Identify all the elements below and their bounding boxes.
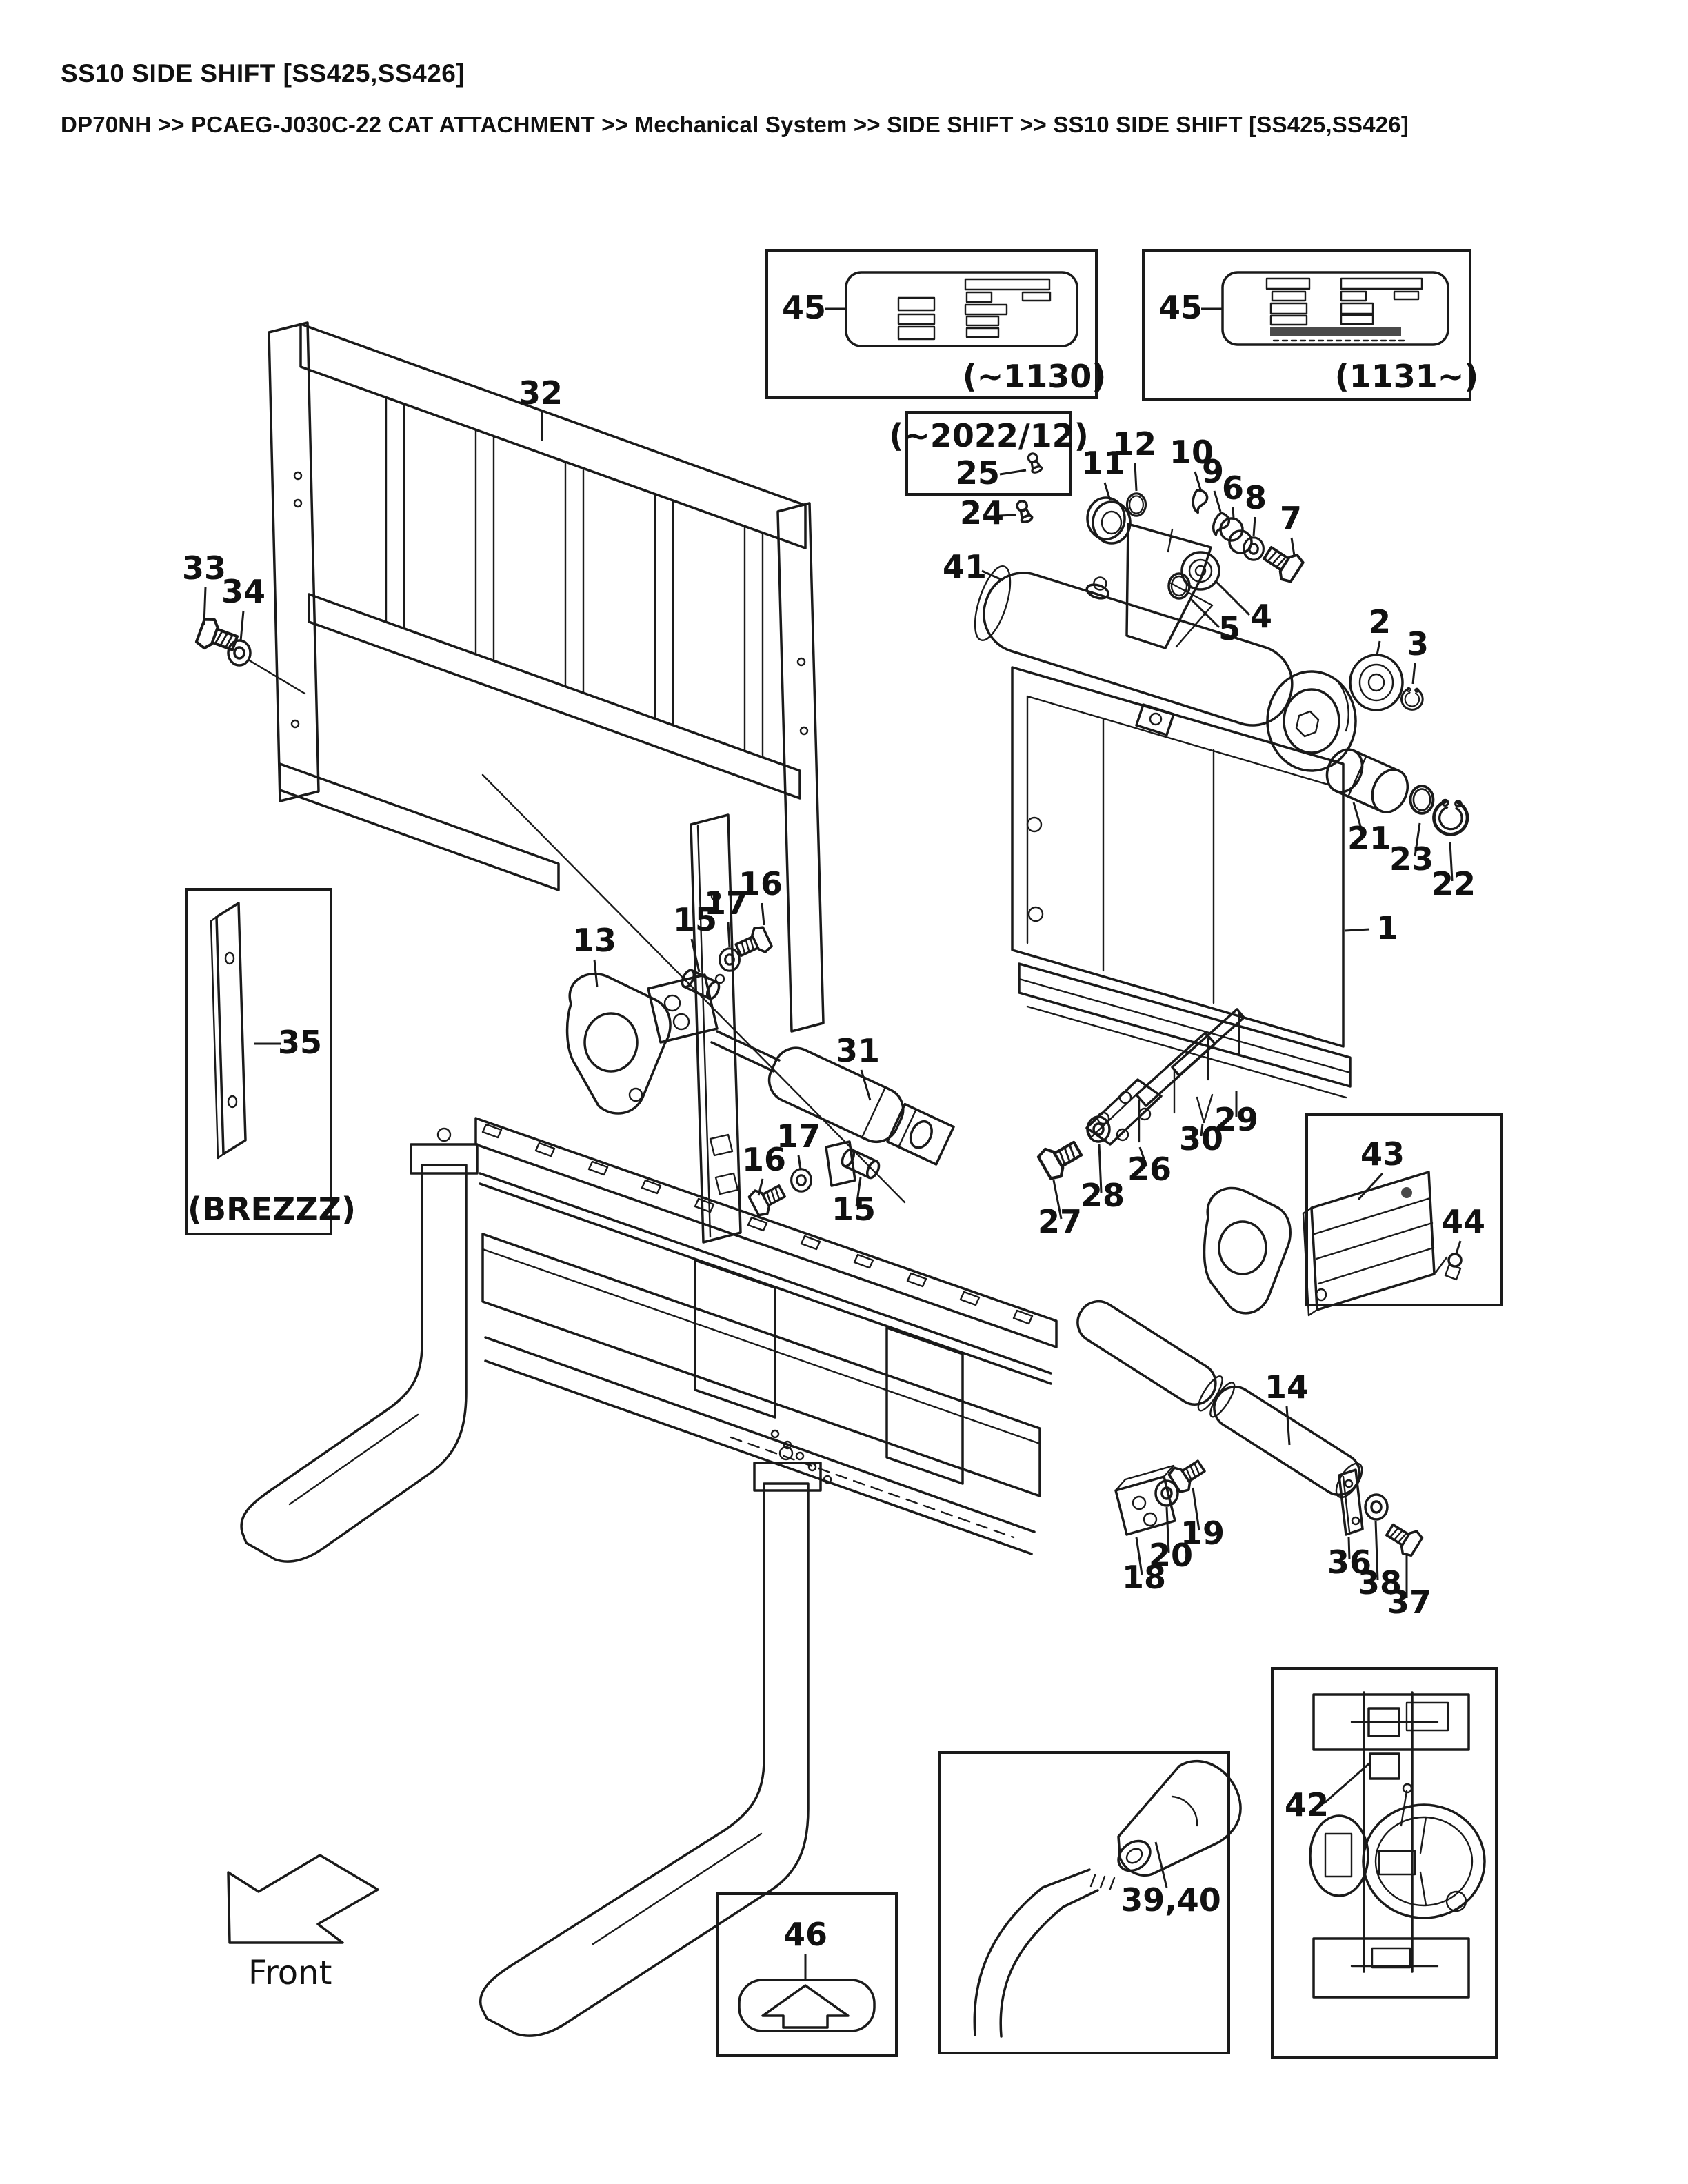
leader-14-13 <box>1287 1406 1289 1445</box>
bolt-19 <box>1167 1455 1208 1495</box>
callout-34-35: 34 <box>221 573 265 610</box>
o-ring-5 <box>1169 574 1189 598</box>
leader-12-11 <box>1135 463 1136 491</box>
callout-30-31: 30 <box>1179 1120 1223 1157</box>
callout-28-29: 28 <box>1081 1177 1125 1214</box>
grease-fitting-24 <box>1015 500 1033 524</box>
leader-8-7 <box>1254 517 1255 536</box>
column-decal-42-art <box>1310 1692 1485 1997</box>
callout-10-9: 10 <box>1169 434 1214 471</box>
leader-13-12 <box>594 960 597 987</box>
load-backrest-32 <box>269 323 905 1202</box>
callout-12-11: 12 <box>1112 425 1156 463</box>
leader-34-35 <box>241 611 243 641</box>
bearing-2 <box>1350 655 1403 710</box>
washer-17-lower <box>792 1169 812 1191</box>
decal-45-early-art <box>846 272 1077 346</box>
callout-16-16: 16 <box>738 865 783 902</box>
pin-15-upper <box>680 969 721 1000</box>
leader-10-9 <box>1195 472 1200 489</box>
callout-5-4: 5 <box>1218 610 1240 647</box>
leader-17-18 <box>798 1155 801 1169</box>
inset-text-decal-45-early-0: 45 <box>782 289 826 326</box>
snap-ring-3 <box>1402 688 1423 709</box>
bolt-7 <box>1260 541 1305 585</box>
washer-8 <box>1244 538 1264 560</box>
callout-24-26: 24 <box>960 494 1004 532</box>
leader-2-1 <box>1377 641 1380 655</box>
inset-leader-grease-fitting-2022-0 <box>1000 470 1026 474</box>
snap-ring-22 <box>1434 800 1467 834</box>
callout-1-0: 1 <box>1376 909 1398 947</box>
bolt-27 <box>1036 1135 1085 1181</box>
o-ring-23 <box>1411 786 1434 813</box>
fork-right <box>481 1447 821 2036</box>
callout-14-13: 14 <box>1265 1368 1309 1406</box>
inset-column-decal-42 <box>1272 1668 1496 2058</box>
front-label: Front <box>248 1954 332 1992</box>
leader-7-6 <box>1292 538 1294 556</box>
inset-leader-decal-43-44-1 <box>1456 1241 1460 1253</box>
grease-fitting-25 <box>1027 452 1043 474</box>
leader-9-8 <box>1214 491 1220 512</box>
inset-text-lever-knob-39-40-0: 39,40 <box>1121 1881 1221 1919</box>
callout-21-23: 21 <box>1347 820 1391 857</box>
callout-23-25: 23 <box>1389 840 1434 878</box>
callout-15-19: 15 <box>832 1191 876 1228</box>
callout-6-5: 6 <box>1222 469 1244 507</box>
inset-text-decal-46-0: 46 <box>783 1916 827 1953</box>
washer-34 <box>228 640 250 665</box>
callout-7-6: 7 <box>1280 500 1302 537</box>
spacer-plate-35-art <box>211 903 245 1158</box>
callout-3-2: 3 <box>1407 625 1429 663</box>
decal-46-art <box>739 1980 874 2031</box>
callout-13-12: 13 <box>572 922 616 959</box>
pin-15-lower <box>840 1148 881 1180</box>
inset-text-column-decal-42-0: 42 <box>1285 1786 1329 1823</box>
bolt-16-lower <box>747 1180 787 1217</box>
callout-4-3: 4 <box>1250 598 1272 635</box>
washer-17-upper <box>720 949 740 971</box>
leader-1-0 <box>1345 929 1369 931</box>
bar-14 <box>1070 1294 1368 1503</box>
block-18 <box>1116 1466 1175 1535</box>
o-ring-12 <box>1127 494 1146 516</box>
inset-text-spacer-plate-brezzz-1: (BREZZZ) <box>188 1191 356 1228</box>
bolt-37 <box>1383 1519 1423 1558</box>
leader-33-34 <box>204 587 205 625</box>
callout-26-27: 26 <box>1127 1151 1172 1188</box>
inset-text-decal-45-late-0: 45 <box>1158 289 1203 326</box>
leader-17-15 <box>728 922 730 947</box>
rivet-44 <box>1445 1254 1461 1280</box>
callout-31-32: 31 <box>836 1032 880 1069</box>
inset-text-decal-45-late-1: (1131~) <box>1335 358 1479 395</box>
leader-31-32 <box>861 1070 870 1100</box>
callout-8-7: 8 <box>1245 479 1267 516</box>
callout-layer: 1234567891011121314151716161715181920212… <box>182 250 1502 2058</box>
leader-3-2 <box>1413 663 1415 684</box>
inset-text-grease-fitting-2022-1: 25 <box>956 454 1000 492</box>
inset-text-grease-fitting-2022-0: (~2022/12) <box>889 417 1088 454</box>
bearing-11 <box>1087 498 1130 543</box>
bushing-21 <box>1320 744 1414 818</box>
inset-text-decal-43-44-1: 44 <box>1441 1203 1485 1240</box>
inset-text-decal-43-44-0: 43 <box>1360 1135 1405 1173</box>
callout-38-38: 38 <box>1358 1564 1402 1601</box>
inset-text-decal-45-early-1: (~1130) <box>963 358 1107 395</box>
inset-spacer-plate-brezzz <box>186 889 331 1234</box>
leader-5-4 <box>1190 598 1219 627</box>
decal-43-art <box>1303 1172 1461 1315</box>
decal-45-late-art <box>1223 272 1448 345</box>
cross-tube-41 <box>967 524 1356 771</box>
washer-38 <box>1365 1495 1387 1519</box>
parts-catalog-page: SS10 SIDE SHIFT [SS425,SS426] DP70NH >> … <box>0 0 1688 2184</box>
callout-33-34: 33 <box>182 549 226 587</box>
clip-10 <box>1191 489 1208 514</box>
callout-17-18: 17 <box>776 1118 821 1155</box>
callout-32-33: 32 <box>519 374 563 412</box>
leader-6-5 <box>1233 507 1234 518</box>
callout-41-39: 41 <box>943 548 987 585</box>
fitting-6 <box>1220 518 1252 553</box>
callout-22-24: 22 <box>1431 865 1476 902</box>
bearing-4 <box>1182 552 1219 589</box>
exploded-parts-diagram: Front 1234567891011121314151716161715181… <box>0 0 1688 2184</box>
callout-20-22: 20 <box>1149 1537 1193 1574</box>
callout-27-28: 27 <box>1038 1203 1082 1240</box>
bolt-33 <box>195 616 240 657</box>
leader-16-16 <box>762 903 764 925</box>
inset-text-spacer-plate-brezzz-0: 35 <box>278 1024 322 1061</box>
front-arrow: Front <box>228 1855 378 1992</box>
callout-2-1: 2 <box>1369 603 1391 640</box>
